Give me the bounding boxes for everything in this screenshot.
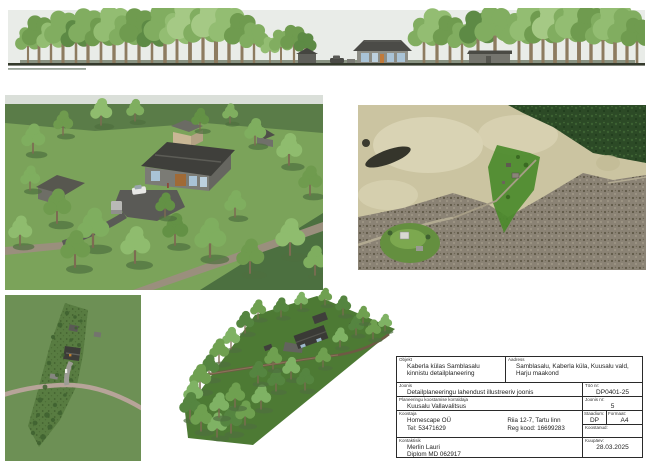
panorama-house xyxy=(353,40,412,63)
tree-line-elevation-svg xyxy=(8,8,645,72)
koostaja-details: Homescape OÜ Riia 12-7, Tartu linn Tel: … xyxy=(399,417,580,433)
cell-koostanud: Koostanud: xyxy=(583,425,642,437)
staadium-value: DP xyxy=(584,417,605,424)
cell-joonis: Joonis Detailplaneeringu lahendust illus… xyxy=(397,383,583,396)
site-isometric-svg xyxy=(173,287,431,449)
site-perspective-figure xyxy=(5,95,323,290)
cell-korraldaja: Planeeringu koostamise korraldaja Kuusal… xyxy=(397,397,583,410)
site-plan-figure xyxy=(5,295,141,461)
cell-too-nr: Töö nr: DP0401-25 xyxy=(583,383,642,396)
site-isometric-figure xyxy=(173,287,431,449)
iso-trees xyxy=(179,288,393,442)
ground-line-secondary xyxy=(8,68,86,70)
panorama-flat-building xyxy=(467,51,512,64)
cell-koostaja: Koostaja Homescape OÜ Riia 12-7, Tartu l… xyxy=(397,411,583,437)
cell-kontaktisik: Kontaktisik Merlin Lauri Diplom MD 06291… xyxy=(397,438,583,457)
koostaja-address: Riia 12-7, Tartu linn xyxy=(507,417,580,425)
site-plan-svg xyxy=(5,295,141,461)
objekt-value-line2: kinnistu detailplaneering xyxy=(399,370,503,377)
joonis-nr-value: 5 xyxy=(585,403,640,410)
title-block: Objekt Kaberla külas Samblasalu kinnistu… xyxy=(396,356,643,458)
aerial-orthophoto-svg xyxy=(358,105,646,270)
koostaja-phone: Tel: 53471629 xyxy=(407,425,507,433)
joonis-value: Detailplaneeringu lahendust illustreeriv… xyxy=(399,389,580,396)
formaat-value: A4 xyxy=(608,417,641,424)
cell-staadium: Staadium: DP xyxy=(583,411,607,424)
koostaja-regcode: Reg kood: 16699283 xyxy=(507,425,580,433)
kontaktisik-diploma: Diplom MD 062917 xyxy=(399,451,580,457)
objekt-value-line1: Kaberla külas Samblasalu xyxy=(399,363,503,370)
aadress-value-line1: Samblasalu, Kaberla küla, Kuusalu vald, xyxy=(508,363,640,370)
cell-formaat: Formaat: A4 xyxy=(607,411,642,424)
neighbor-property xyxy=(380,223,440,263)
too-nr-value: DP0401-25 xyxy=(585,389,640,396)
kontaktisik-name: Merlin Lauri xyxy=(399,444,580,451)
cell-objekt: Objekt Kaberla külas Samblasalu kinnistu… xyxy=(397,357,506,382)
cell-joonis-nr: Joonis nr: 5 xyxy=(583,397,642,410)
tree-line-elevation-figure xyxy=(8,8,645,72)
cell-staadium-group: Staadium: DP Formaat: A4 Koostanud: xyxy=(583,411,642,437)
aadress-value-line2: Harju maakond xyxy=(508,370,640,377)
koostaja-company: Homescape OÜ xyxy=(407,417,507,425)
aerial-orthophoto-figure xyxy=(358,105,646,270)
kuupaev-value: 28.03.2025 xyxy=(585,444,640,452)
koostanud-label: Koostanud: xyxy=(585,426,640,431)
cell-aadress: Aadress Samblasalu, Kaberla küla, Kuusal… xyxy=(506,357,642,382)
korraldaja-value: Kuusalu Vallavalitsus xyxy=(399,403,580,410)
cell-kuupaev: Kuupäev: 28.03.2025 xyxy=(583,438,642,457)
ground-line xyxy=(8,63,645,66)
drawing-sheet: Objekt Kaberla külas Samblasalu kinnistu… xyxy=(0,0,650,474)
site-perspective-svg xyxy=(5,95,323,290)
